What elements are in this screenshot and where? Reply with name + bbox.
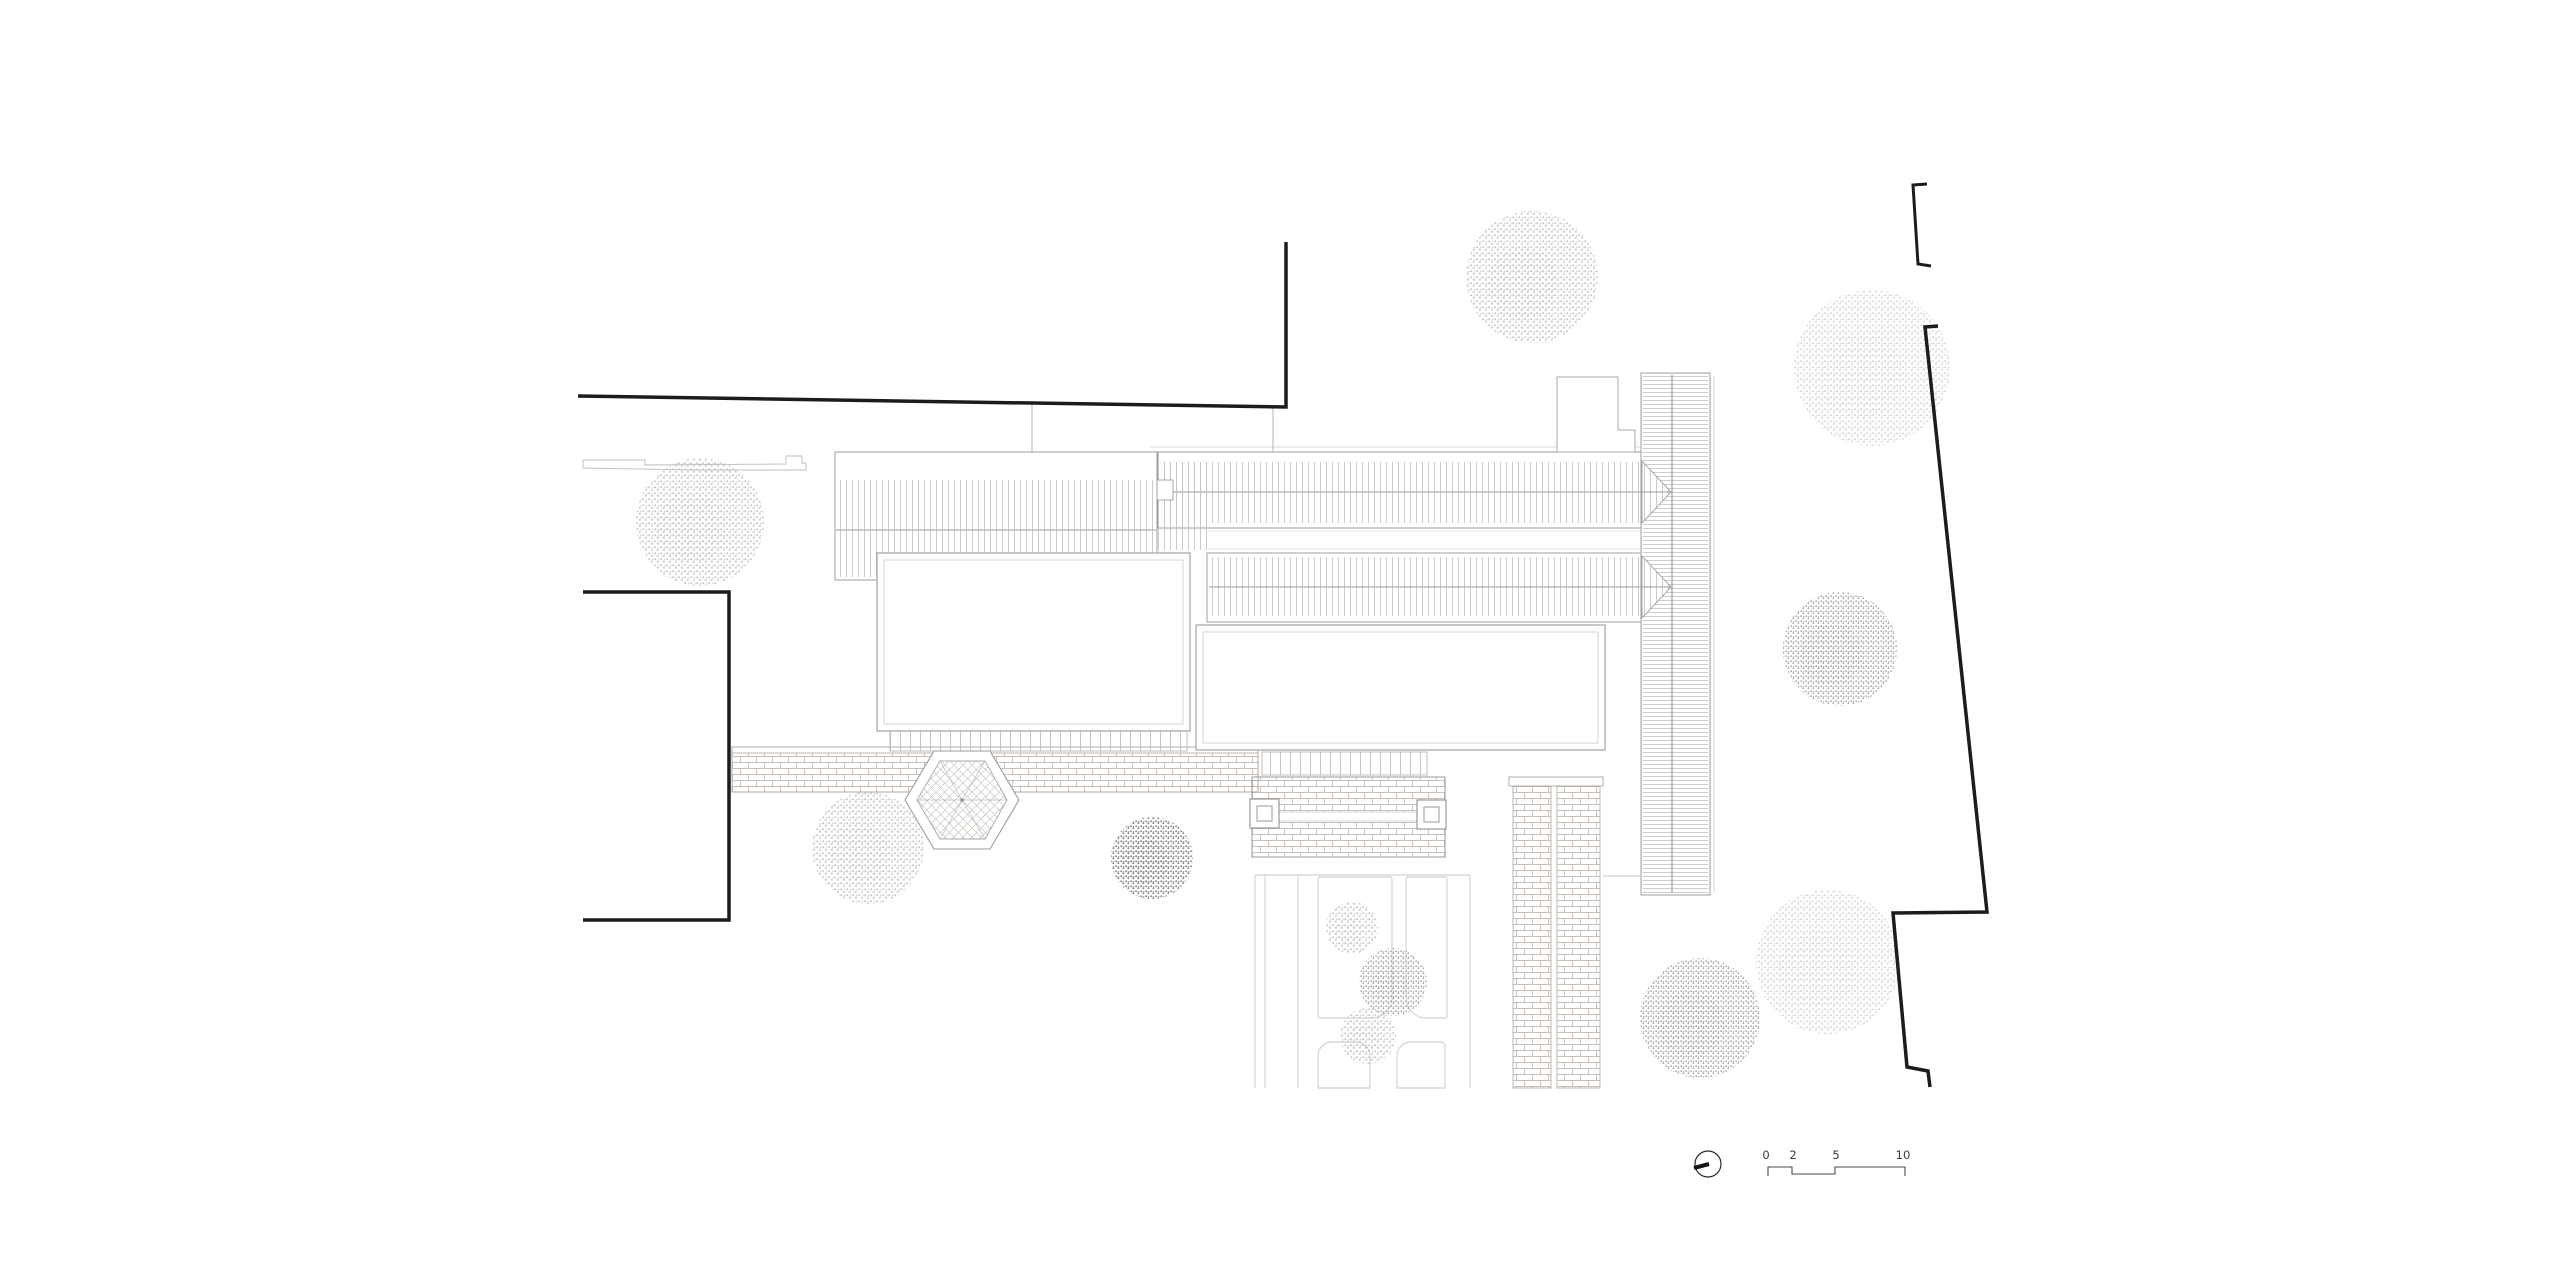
pergola-walk — [1252, 812, 1445, 821]
tree-canopy-core — [655, 493, 725, 563]
tree — [1640, 958, 1760, 1078]
tree-canopy-core — [1778, 930, 1857, 1009]
annex-building — [1557, 377, 1635, 452]
scale-label: 10 — [1896, 1148, 1911, 1162]
chimney — [1157, 480, 1173, 500]
tree — [1326, 902, 1378, 954]
tree — [1783, 592, 1897, 706]
site-boundary-north — [578, 242, 1286, 407]
courtyard-east — [1196, 625, 1605, 750]
tree-canopy-core — [1369, 967, 1406, 1004]
tree — [1756, 890, 1900, 1034]
site-plan-drawing: 02510 — [0, 0, 2560, 1280]
tree-canopy-core — [1817, 333, 1903, 419]
garden-bed — [1397, 1042, 1445, 1088]
scale-label: 0 — [1762, 1148, 1769, 1162]
tree-canopy-core — [1123, 840, 1168, 885]
brick-walk-head — [1509, 777, 1603, 786]
colonnade-east — [1262, 752, 1427, 775]
scale-bar: 02510 — [1762, 1148, 1910, 1176]
brick-walk-east — [1557, 786, 1600, 1088]
hall-north-roof-south-slope — [1160, 492, 1641, 523]
gate-pier — [1250, 799, 1279, 828]
site-boundary-east — [1893, 326, 1987, 1087]
tree — [1340, 1008, 1396, 1064]
brick-walk-west — [1513, 786, 1551, 1088]
tree — [812, 792, 924, 904]
tree-canopy-core — [1800, 623, 1863, 686]
tree — [1111, 817, 1193, 899]
tree — [1466, 211, 1598, 343]
site-boundary-west — [583, 592, 729, 920]
north-arrow-needle — [1694, 1164, 1709, 1168]
tree-canopy-core — [1348, 1023, 1379, 1054]
north-arrow — [1694, 1151, 1721, 1177]
tree — [1359, 948, 1427, 1016]
courtyard-west — [877, 553, 1190, 731]
site-plan-canvas: 02510 — [0, 0, 2560, 1280]
hall-south-roof-north-slope — [1209, 557, 1641, 587]
tree — [636, 458, 764, 586]
roof-connector — [1157, 462, 1207, 550]
gallery-roof-hatch — [1643, 375, 1708, 893]
tree — [1794, 290, 1950, 446]
tree-canopy-core — [1334, 916, 1363, 945]
colonnade-north — [890, 730, 1187, 751]
hall-west-roof-north-slope — [837, 480, 1155, 530]
scale-bar-line — [1768, 1167, 1905, 1176]
scale-label: 2 — [1789, 1148, 1796, 1162]
pavilion-finial — [960, 798, 963, 801]
scale-label: 5 — [1832, 1148, 1839, 1162]
hall-south-roof-south-slope — [1209, 587, 1641, 616]
gate-pier — [1417, 800, 1446, 829]
site-boundary-northeast — [1913, 184, 1931, 266]
hall-north-roof-north-slope — [1160, 462, 1641, 492]
tree-canopy-core — [1658, 991, 1724, 1057]
tree-canopy-core — [829, 823, 891, 885]
tree-canopy-core — [1486, 247, 1559, 320]
